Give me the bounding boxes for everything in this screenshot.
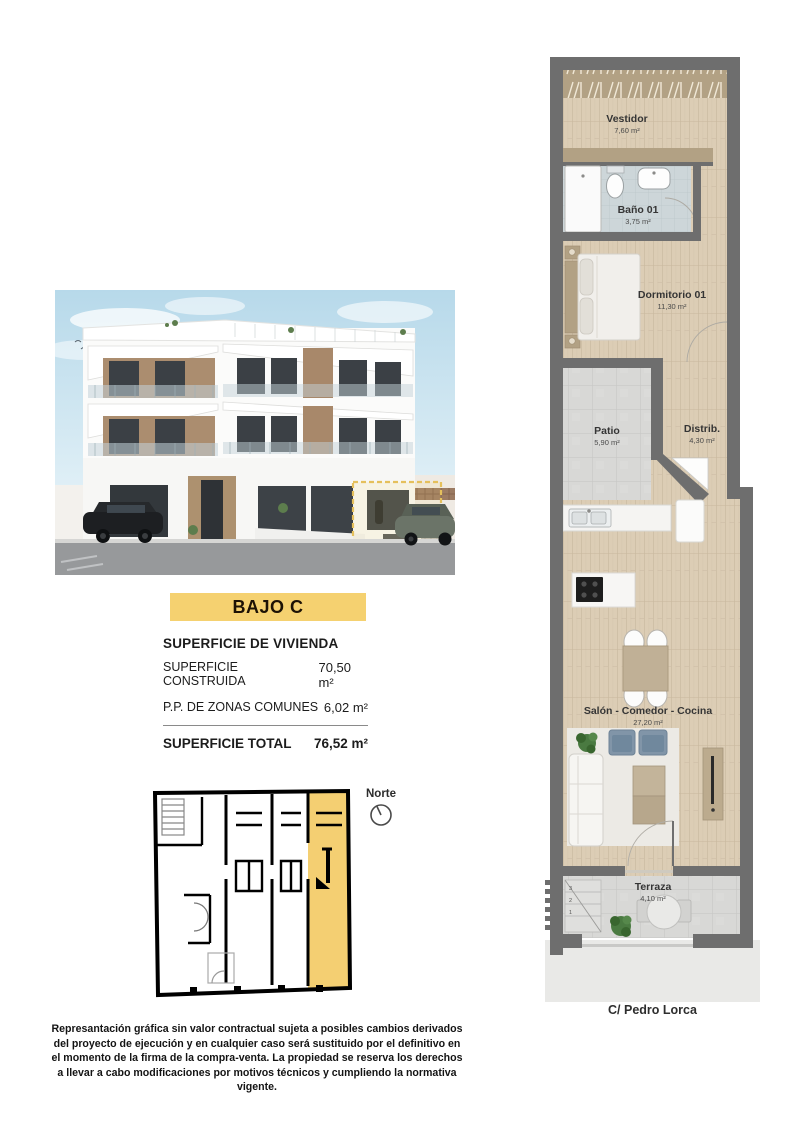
location-key-plan: [150, 783, 362, 1015]
stair-step-number: 2: [569, 898, 572, 904]
room-label: Vestidor: [606, 113, 647, 125]
closet-band: [563, 148, 713, 164]
room-label: Terraza: [635, 881, 672, 893]
pillow: [580, 298, 593, 334]
floor-plan-illustration: Vestidor 7,60 m² Baño 01 3,75 m² Dormito…: [545, 50, 760, 1002]
room-label: Dormitorio 01: [638, 289, 706, 301]
party-walls: [226, 793, 308, 986]
table-total-row: SUPERFICIE TOTAL 76,52 m²: [163, 736, 368, 751]
highlighted-unit-area: [308, 792, 348, 990]
coffee-table: [633, 766, 665, 824]
washbasin: [638, 168, 670, 189]
building-render-illustration: [55, 290, 455, 575]
room-label: Baño 01: [618, 204, 659, 216]
room-area: 11,30 m²: [657, 302, 687, 311]
wardrobe-hatch: [563, 70, 727, 98]
stair-step-number: 1: [569, 910, 572, 916]
north-compass-icon: [368, 802, 394, 828]
table-row: P.P. DE ZONAS COMUNES 6,02 m²: [163, 700, 368, 715]
tv-console: [703, 748, 723, 820]
unit-name-badge: BAJO C: [170, 593, 366, 621]
surface-section-title: SUPERFICIE DE VIVIENDA: [163, 636, 368, 651]
room-label: Patio: [594, 425, 620, 437]
building-render: [55, 290, 455, 575]
sofa: [569, 754, 603, 846]
row-value: 70,50 m²: [318, 660, 368, 690]
kitchen-island: [572, 573, 635, 607]
neighbor-wall-left: [55, 485, 85, 545]
street-name: C/ Pedro Lorca: [545, 1003, 760, 1017]
room-label: Distrib.: [684, 423, 720, 435]
room-area: 7,60 m²: [614, 126, 640, 135]
stair-icon: [162, 799, 234, 983]
room-label: Salón - Comedor - Cocina: [584, 705, 713, 717]
stair-step-number: 3: [569, 886, 572, 892]
north-indicator: Norte: [356, 788, 406, 833]
total-label: SUPERFICIE TOTAL: [163, 736, 292, 751]
fridge: [676, 500, 704, 542]
tv: [711, 756, 714, 804]
headboard: [565, 261, 578, 333]
room-area: 3,75 m²: [625, 217, 651, 226]
toilet-tank: [607, 166, 624, 173]
cooktop: [576, 577, 603, 602]
bed: [565, 246, 640, 348]
room-area: 4,30 m²: [689, 436, 715, 445]
brochure-page: BAJO C SUPERFICIE DE VIVIENDA SUPERFICIE…: [0, 0, 800, 1131]
room-area: 5,90 m²: [594, 438, 620, 447]
row-value: 6,02 m²: [324, 700, 368, 715]
floor-plan: Vestidor 7,60 m² Baño 01 3,75 m² Dormito…: [545, 50, 760, 1002]
surface-table: SUPERFICIE DE VIVIENDA SUPERFICIE CONSTR…: [163, 636, 368, 751]
pillow: [580, 259, 593, 295]
room-area: 27,20 m²: [633, 718, 663, 727]
toilet: [607, 174, 624, 198]
total-value: 76,52 m²: [314, 736, 368, 751]
table-divider: [163, 725, 368, 726]
row-label: P.P. DE ZONAS COMUNES: [163, 700, 318, 715]
row-label: SUPERFICIE CONSTRUIDA: [163, 660, 318, 690]
street-pavement: [545, 940, 760, 1002]
entrance-door: [188, 476, 236, 540]
table-row: SUPERFICIE CONSTRUIDA 70,50 m²: [163, 660, 368, 690]
legal-disclaimer: Represantación gráfica sin valor contrac…: [48, 1022, 466, 1095]
unit-name-label: BAJO C: [232, 597, 303, 618]
north-label: Norte: [356, 788, 406, 800]
key-plan-illustration: [150, 783, 362, 1015]
room-area: 4,10 m²: [640, 894, 666, 903]
road: [55, 542, 455, 575]
